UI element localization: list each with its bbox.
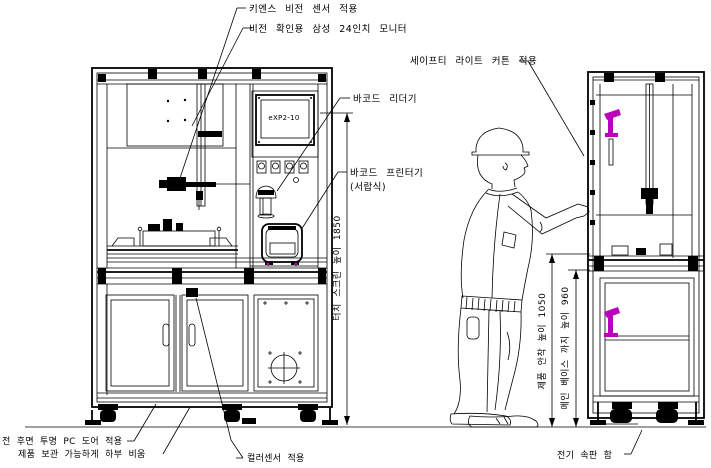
color-sensor (186, 288, 198, 297)
operation-buttons (257, 161, 308, 183)
callout-color-sensor: 컬러센서 적용 (247, 452, 305, 464)
equipment-drawing: eXP2-10 (0, 0, 711, 468)
callout-barcode-reader: 바코드 리더기 (353, 94, 417, 105)
side-mid-shelf (588, 244, 704, 271)
vision-rail-side (641, 84, 658, 214)
callout-vision-monitor: 비전 확인용 삼성 24인치 모니터 (249, 23, 407, 35)
door-handle-right (189, 324, 195, 346)
fixture-base (143, 231, 215, 246)
push-button-1 (257, 161, 266, 173)
caster (656, 402, 678, 423)
front-view-machine: eXP2-10 (85, 68, 338, 425)
frame-inner (97, 73, 327, 402)
torso-back (461, 190, 488, 298)
door-handle-left (163, 324, 169, 346)
side-view-machine (588, 72, 704, 425)
dimension-main-base-height: 메인 베이스 까지 높이 960 (560, 270, 590, 427)
chest-pocket (502, 232, 516, 248)
toggle-clamp-lower (604, 307, 620, 337)
dim-text-1050: 제품 안착 높이 1050 (537, 293, 548, 390)
cad-drawing-canvas: eXP2-10 (0, 0, 711, 468)
callout-barcode-printer-sub: (서랍식) (350, 181, 386, 193)
touch-screen-model-text: eXP2-10 (268, 114, 299, 122)
callouts: 키엔스 비전 센서 적용 비전 확인용 삼성 24인치 모니터 바코드 리더기 … (2, 3, 642, 464)
safety-light-curtain-strip (590, 100, 595, 225)
toggle-clamp-upper (604, 109, 621, 165)
key-switch (294, 178, 299, 183)
work-table (107, 219, 327, 262)
barcode-reader-device (256, 186, 276, 218)
barcode-printer-device (250, 224, 318, 266)
cabinet-door-left (106, 295, 174, 391)
printer-foot-accent (267, 263, 270, 266)
hard-hat (472, 128, 529, 155)
callout-safety-light-curtain: 세이프티 라이트 커튼 적용 (410, 55, 537, 67)
dim-text-1850: 터치 스크린 높이 1850 (331, 215, 343, 320)
callout-vision-sensor: 키엔스 비전 센서 적용 (249, 3, 358, 15)
callout-transparent-door: 전 후면 투명 PC 도어 적용 (2, 435, 122, 447)
printer-foot-accent (295, 263, 298, 266)
hem-band (461, 296, 522, 312)
push-button-2 (271, 161, 280, 173)
callout-barcode-printer: 바코드 프린터기 (350, 168, 423, 179)
electric-panel-box (600, 278, 694, 396)
torso-front (518, 192, 532, 300)
arm-reaching (508, 194, 589, 234)
touch-screen-panel: eXP2-10 (252, 91, 318, 157)
head-back (477, 155, 492, 189)
push-button-4 (299, 161, 308, 173)
push-button-3 (285, 161, 294, 173)
callout-bottom-storage: 제품 보관 가능하게 하부 비움 (18, 449, 146, 460)
mid-frame (97, 268, 327, 284)
caster (85, 404, 118, 425)
vision-camera (167, 177, 186, 191)
callout-electric-panel-box: 전기 속판 함 (557, 450, 612, 461)
side-view-casters (590, 402, 704, 425)
legs (454, 308, 521, 414)
lower-cabinet (97, 284, 327, 398)
vent-panel (254, 295, 318, 391)
face-profile (514, 155, 528, 187)
ear (503, 163, 507, 170)
pants-pocket (467, 317, 479, 339)
shoes (450, 413, 538, 427)
control-column: eXP2-10 (250, 84, 318, 268)
dim-text-960: 메인 베이스 까지 높이 960 (560, 286, 571, 409)
hand (576, 204, 589, 218)
